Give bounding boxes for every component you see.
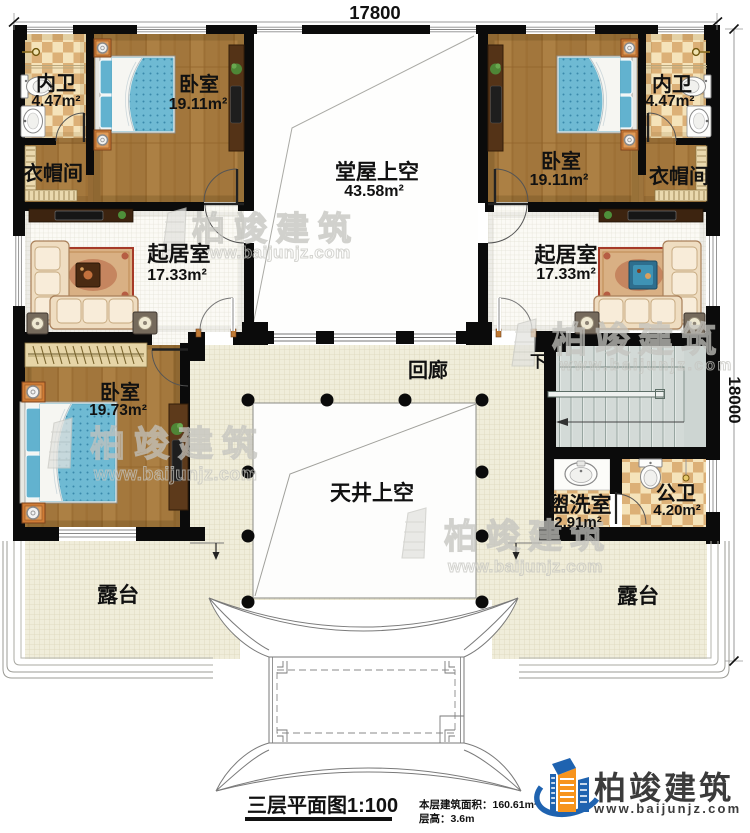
svg-text:www.baijunjz.com: www.baijunjz.com xyxy=(559,357,734,374)
svg-text:起居室: 起居室 xyxy=(147,242,211,266)
svg-text:19.73m²: 19.73m² xyxy=(89,402,147,419)
svg-text:卧室: 卧室 xyxy=(541,149,581,173)
svg-text:18000: 18000 xyxy=(725,376,744,423)
svg-text:衣帽间: 衣帽间 xyxy=(23,161,83,185)
svg-text:天井上空: 天井上空 xyxy=(330,481,414,505)
svg-text:卧室: 卧室 xyxy=(100,380,140,404)
svg-text:柏竣建筑: 柏竣建筑 xyxy=(552,320,724,360)
svg-text:19.11m²: 19.11m² xyxy=(169,96,228,113)
svg-text:露台: 露台 xyxy=(617,584,659,608)
svg-text:卧室: 卧室 xyxy=(179,72,219,96)
svg-text:衣帽间: 衣帽间 xyxy=(649,164,709,188)
svg-text:17.33m²: 17.33m² xyxy=(147,267,207,284)
svg-text:www.baijunjz.com: www.baijunjz.com xyxy=(195,243,351,262)
svg-text:4.47m²: 4.47m² xyxy=(645,93,694,110)
svg-text:起居室: 起居室 xyxy=(534,243,598,267)
svg-text:三层平面图1:100: 三层平面图1:100 xyxy=(247,794,398,817)
svg-text:17800: 17800 xyxy=(349,2,400,23)
svg-text:层高：3.6m: 层高：3.6m xyxy=(419,812,474,825)
svg-text:43.58m²: 43.58m² xyxy=(344,183,404,200)
svg-text:堂屋上空: 堂屋上空 xyxy=(335,160,419,184)
svg-text:露台: 露台 xyxy=(97,583,139,607)
svg-text:www.baijunjz.com: www.baijunjz.com xyxy=(593,801,741,816)
svg-text:4.20m²: 4.20m² xyxy=(653,502,701,519)
svg-text:本层建筑面积：160.61m²: 本层建筑面积：160.61m² xyxy=(419,798,538,811)
svg-text:内卫: 内卫 xyxy=(36,71,76,95)
svg-text:柏竣建筑: 柏竣建筑 xyxy=(192,210,360,247)
svg-text:www.baijunjz.com: www.baijunjz.com xyxy=(93,464,257,484)
svg-text:回廊: 回廊 xyxy=(408,358,448,382)
svg-text:4.47m²: 4.47m² xyxy=(31,93,80,110)
svg-text:17.33m²: 17.33m² xyxy=(536,266,596,283)
svg-text:www.baijunjz.com: www.baijunjz.com xyxy=(447,557,603,576)
svg-text:下: 下 xyxy=(530,354,546,371)
svg-text:柏竣建筑: 柏竣建筑 xyxy=(90,424,266,464)
svg-text:2.91m²: 2.91m² xyxy=(554,514,602,531)
svg-text:19.11m²: 19.11m² xyxy=(530,172,589,189)
